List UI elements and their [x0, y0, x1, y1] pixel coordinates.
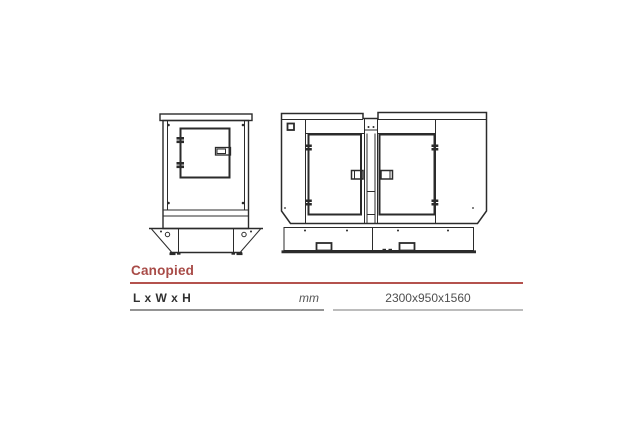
side-door-left	[309, 135, 362, 215]
spec-sheet-page: Canopied L x W x H mm 2300x950x1560	[0, 0, 640, 427]
side-base-skid	[282, 228, 477, 252]
section-heading: Canopied	[131, 263, 194, 278]
dimensions-value: 2300x950x1560	[333, 291, 523, 305]
front-roof-cap	[160, 114, 252, 121]
skid-slot-left	[317, 243, 332, 251]
dimensions-unit: mm	[299, 291, 319, 305]
front-view-drawing	[149, 114, 263, 255]
side-view-drawing	[282, 113, 487, 252]
side-door-handle-right-icon	[381, 171, 393, 180]
row-rule-left	[130, 309, 324, 311]
row-rule-right	[333, 309, 523, 311]
skid-slot-right	[400, 243, 415, 251]
side-centre-pillar	[365, 119, 378, 224]
front-base-hole-right	[242, 232, 246, 236]
technical-drawings	[0, 0, 640, 262]
spec-row-dimensions: L x W x H mm 2300x950x1560	[0, 291, 640, 305]
heading-underline	[130, 282, 523, 284]
side-vent-icon	[288, 124, 295, 131]
front-base-hole-left	[165, 232, 169, 236]
side-door-right	[380, 135, 435, 215]
dimensions-label: L x W x H	[133, 291, 191, 305]
side-body-outline	[282, 113, 487, 224]
front-base-frame	[149, 229, 263, 256]
side-door-hinges	[305, 145, 438, 206]
front-door-handle-icon	[216, 148, 231, 156]
front-body	[163, 121, 249, 229]
